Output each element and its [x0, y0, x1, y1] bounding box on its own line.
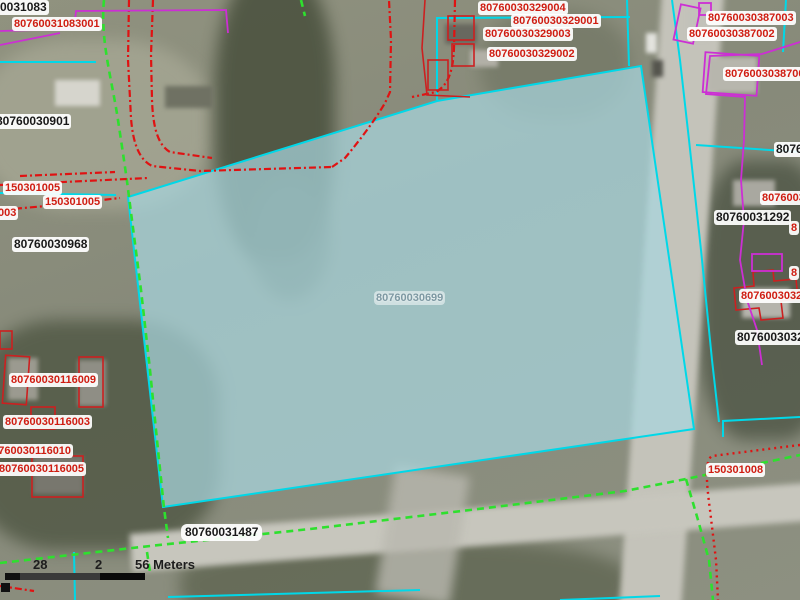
parcel-label: 80760030968: [12, 237, 89, 252]
parcel-label: 8076003: [760, 191, 800, 205]
parcel-label: 8: [789, 221, 799, 235]
parcel-label: 8076003032: [739, 289, 800, 303]
parcel-label: 8076003038700: [723, 67, 800, 81]
parcel-label: 150301005: [3, 181, 62, 195]
parcel-label: 80760030901: [0, 114, 71, 129]
parcel-label: 80760031487: [181, 524, 262, 541]
parcel-label: 80760031083001: [12, 17, 102, 31]
parcel-label: 80760030116010: [0, 444, 73, 458]
parcel-label: 80760030387003: [706, 11, 796, 25]
parcel-label: 8076: [774, 142, 800, 157]
map-viewport[interactable]: 0031083807600310830018076003090115030100…: [0, 0, 800, 600]
parcel-label: 150301005: [43, 195, 102, 209]
parcel-label: 80760030699: [374, 291, 445, 305]
parcel-label: 80760030329001: [511, 14, 601, 28]
parcel-label: 80760030329004: [478, 1, 568, 15]
selected-parcel-polygon[interactable]: [128, 66, 694, 507]
parcel-label: 80760030116005: [0, 462, 86, 476]
parcel-label: 8076003032: [735, 330, 800, 345]
parcel-label: 80760030329002: [487, 47, 577, 61]
parcel-label: 80760030116009: [9, 373, 98, 387]
parcel-label: 80760031292: [714, 210, 791, 225]
parcel-label: 150301008: [706, 463, 765, 477]
parcel-label: 80760030387002: [687, 27, 777, 41]
parcel-label: 003: [0, 206, 18, 220]
parcel-label: 8: [789, 266, 799, 280]
parcel-label: 80760030329003: [483, 27, 573, 41]
parcel-label: 80760030116003: [3, 415, 92, 429]
parcel-label: 0031083: [0, 0, 49, 15]
